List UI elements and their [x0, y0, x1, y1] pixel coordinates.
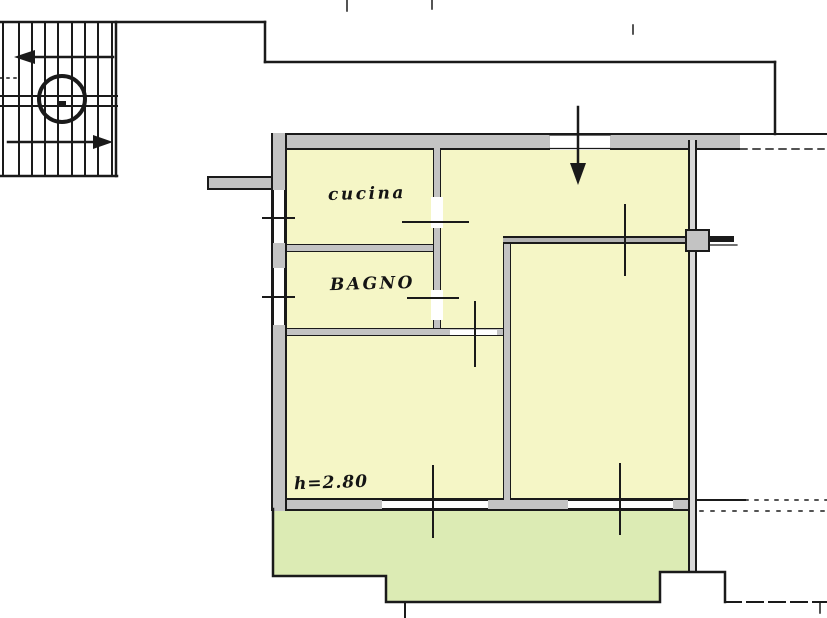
room-label-bathroom: BAGNO	[330, 273, 415, 295]
right-stub-wall	[710, 236, 734, 242]
stairwell	[0, 22, 265, 176]
stair-direction-down-arrow-icon	[8, 135, 113, 149]
entrance-arrow-icon	[570, 107, 586, 185]
balcony	[273, 509, 827, 618]
plan-linework	[0, 0, 827, 618]
balcony-area	[273, 511, 688, 602]
room-label-kitchen: cucina	[328, 183, 406, 205]
stair-treads	[3, 22, 116, 176]
stair-circle-dot	[59, 101, 66, 107]
party-wall-extensions	[697, 236, 827, 511]
building-outline	[265, 0, 827, 149]
floor-plan-canvas: cucina BAGNO h=2.80	[0, 0, 827, 618]
ceiling-height-label: h=2.80	[294, 472, 369, 495]
